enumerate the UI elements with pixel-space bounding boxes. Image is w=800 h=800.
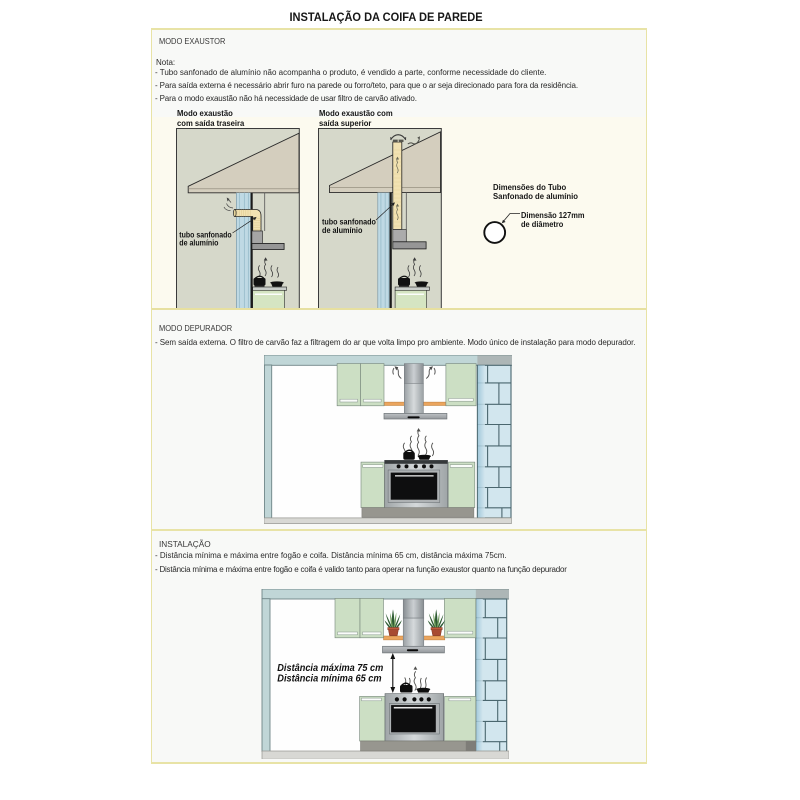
svg-text:Distância máxima 75 cm: Distância máxima 75 cm: [277, 663, 383, 674]
svg-text:de alumínio: de alumínio: [322, 226, 362, 235]
svg-text:Distância mínima 65 cm: Distância mínima 65 cm: [277, 674, 381, 685]
svg-text:de alumínio: de alumínio: [179, 239, 218, 248]
